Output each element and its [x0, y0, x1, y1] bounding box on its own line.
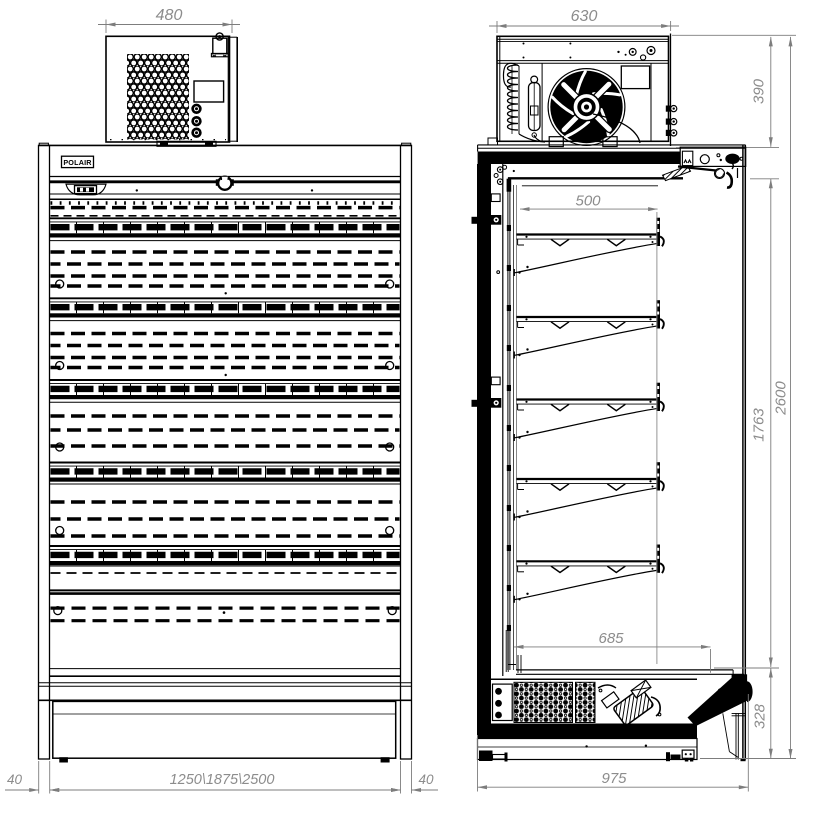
svg-text:480: 480 [156, 7, 183, 24]
svg-text:40: 40 [418, 772, 434, 787]
svg-text:630: 630 [571, 8, 598, 25]
svg-text:328: 328 [752, 703, 769, 729]
svg-text:685: 685 [598, 630, 624, 647]
svg-text:2600: 2600 [773, 381, 790, 416]
svg-text:1250\1875\2500: 1250\1875\2500 [170, 772, 275, 788]
svg-text:975: 975 [601, 770, 627, 787]
svg-text:390: 390 [751, 78, 768, 104]
svg-text:1763: 1763 [751, 408, 768, 442]
svg-text:40: 40 [7, 772, 23, 787]
svg-text:500: 500 [575, 193, 601, 210]
svg-text:POLAIR: POLAIR [63, 158, 92, 167]
